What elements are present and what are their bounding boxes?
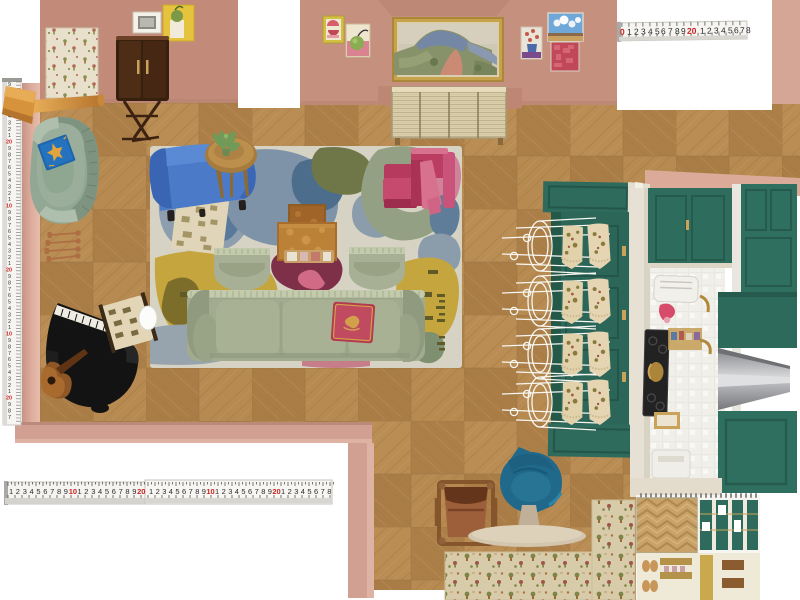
svg-text:2: 2 [222,487,226,496]
svg-text:9: 9 [8,338,11,344]
svg-text:3: 3 [91,487,95,496]
svg-text:7: 7 [8,415,11,421]
svg-text:8: 8 [8,280,11,286]
svg-text:7: 7 [8,351,11,357]
svg-text:7: 7 [189,487,193,496]
svg-text:1: 1 [700,26,705,36]
svg-text:2: 2 [84,487,88,496]
svg-text:7: 7 [668,26,673,36]
svg-text:2: 2 [16,487,20,496]
svg-text:1: 1 [8,389,11,395]
svg-text:5: 5 [728,25,733,35]
svg-text:4: 4 [648,26,653,36]
svg-text:5: 5 [8,236,11,242]
svg-text:2: 2 [8,127,11,133]
svg-text:3: 3 [228,487,232,496]
svg-text:7: 7 [740,25,745,35]
svg-text:3: 3 [641,26,646,36]
svg-text:6: 6 [8,165,11,171]
svg-text:8: 8 [8,152,11,158]
svg-text:6: 6 [8,357,11,363]
svg-text:3: 3 [8,376,11,382]
svg-text:8: 8 [57,487,61,496]
svg-text:2: 2 [8,319,11,325]
svg-text:1: 1 [627,27,632,37]
svg-text:20: 20 [687,26,697,36]
svg-text:9: 9 [202,487,206,496]
svg-text:8: 8 [195,487,199,496]
svg-text:3: 3 [8,120,11,126]
svg-text:8: 8 [8,344,11,350]
svg-text:7: 7 [8,223,11,229]
svg-text:1: 1 [281,487,285,496]
svg-text:6: 6 [661,26,666,36]
svg-text:0: 0 [620,27,625,37]
svg-text:9: 9 [8,274,11,280]
svg-text:6: 6 [112,487,116,496]
svg-text:9: 9 [8,146,11,152]
svg-text:7: 7 [321,487,325,496]
svg-text:8: 8 [261,487,265,496]
svg-text:1: 1 [149,487,153,496]
svg-text:4: 4 [235,487,239,496]
svg-text:3: 3 [8,248,11,254]
svg-text:5: 5 [307,487,311,496]
svg-text:7: 7 [119,487,123,496]
svg-text:4: 4 [98,487,102,496]
svg-text:2: 2 [8,191,11,197]
svg-text:8: 8 [675,26,680,36]
svg-text:4: 4 [8,370,11,376]
svg-text:2: 2 [288,487,292,496]
svg-text:9: 9 [681,26,686,36]
svg-text:2: 2 [707,26,712,36]
svg-text:5: 5 [8,172,11,178]
svg-text:3: 3 [162,487,166,496]
svg-text:3: 3 [294,487,298,496]
svg-text:9: 9 [8,402,11,408]
svg-text:3: 3 [8,312,11,318]
svg-text:5: 5 [105,487,109,496]
svg-text:9: 9 [8,210,11,216]
svg-text:9: 9 [268,487,272,496]
svg-text:5: 5 [175,487,179,496]
svg-text:7: 7 [50,487,54,496]
svg-text:10: 10 [6,204,12,210]
svg-text:7: 7 [8,159,11,165]
svg-text:10: 10 [6,332,12,338]
svg-text:6: 6 [8,229,11,235]
svg-text:1: 1 [8,133,11,139]
svg-text:2: 2 [634,27,639,37]
svg-text:6: 6 [43,487,47,496]
svg-text:8: 8 [746,25,751,35]
svg-text:7: 7 [255,487,259,496]
svg-text:20: 20 [137,487,145,496]
svg-text:10: 10 [69,487,77,496]
svg-text:6: 6 [248,487,252,496]
svg-text:4: 4 [8,306,11,312]
svg-text:5: 5 [8,300,11,306]
svg-text:3: 3 [8,184,11,190]
svg-text:5: 5 [655,26,660,36]
svg-text:2: 2 [8,255,11,261]
svg-text:2: 2 [8,383,11,389]
svg-text:6: 6 [8,293,11,299]
svg-text:4: 4 [721,25,726,35]
svg-text:1: 1 [8,197,11,203]
svg-text:9: 9 [64,487,68,496]
svg-text:6: 6 [314,487,318,496]
svg-text:20: 20 [272,487,280,496]
svg-text:4: 4 [169,487,173,496]
svg-text:9: 9 [132,487,136,496]
svg-text:3: 3 [714,25,719,35]
svg-text:6: 6 [182,487,186,496]
svg-text:4: 4 [30,487,34,496]
svg-text:1: 1 [8,261,11,267]
svg-text:10: 10 [206,487,214,496]
svg-text:1: 1 [8,325,11,331]
svg-text:5: 5 [36,487,40,496]
svg-text:4: 4 [301,487,305,496]
svg-text:1: 1 [78,487,82,496]
svg-text:8: 8 [8,216,11,222]
svg-text:20: 20 [6,396,12,402]
svg-text:8: 8 [8,408,11,414]
svg-text:1: 1 [215,487,219,496]
svg-text:5: 5 [241,487,245,496]
svg-text:5: 5 [8,364,11,370]
svg-text:4: 4 [8,178,11,184]
svg-text:20: 20 [6,268,12,274]
svg-text:20: 20 [6,140,12,146]
svg-text:8: 8 [125,487,129,496]
svg-text:1: 1 [9,487,13,496]
svg-text:7: 7 [8,287,11,293]
svg-text:6: 6 [734,25,739,35]
svg-text:8: 8 [327,487,331,496]
svg-text:3: 3 [23,487,27,496]
svg-text:2: 2 [156,487,160,496]
svg-text:4: 4 [8,242,11,248]
